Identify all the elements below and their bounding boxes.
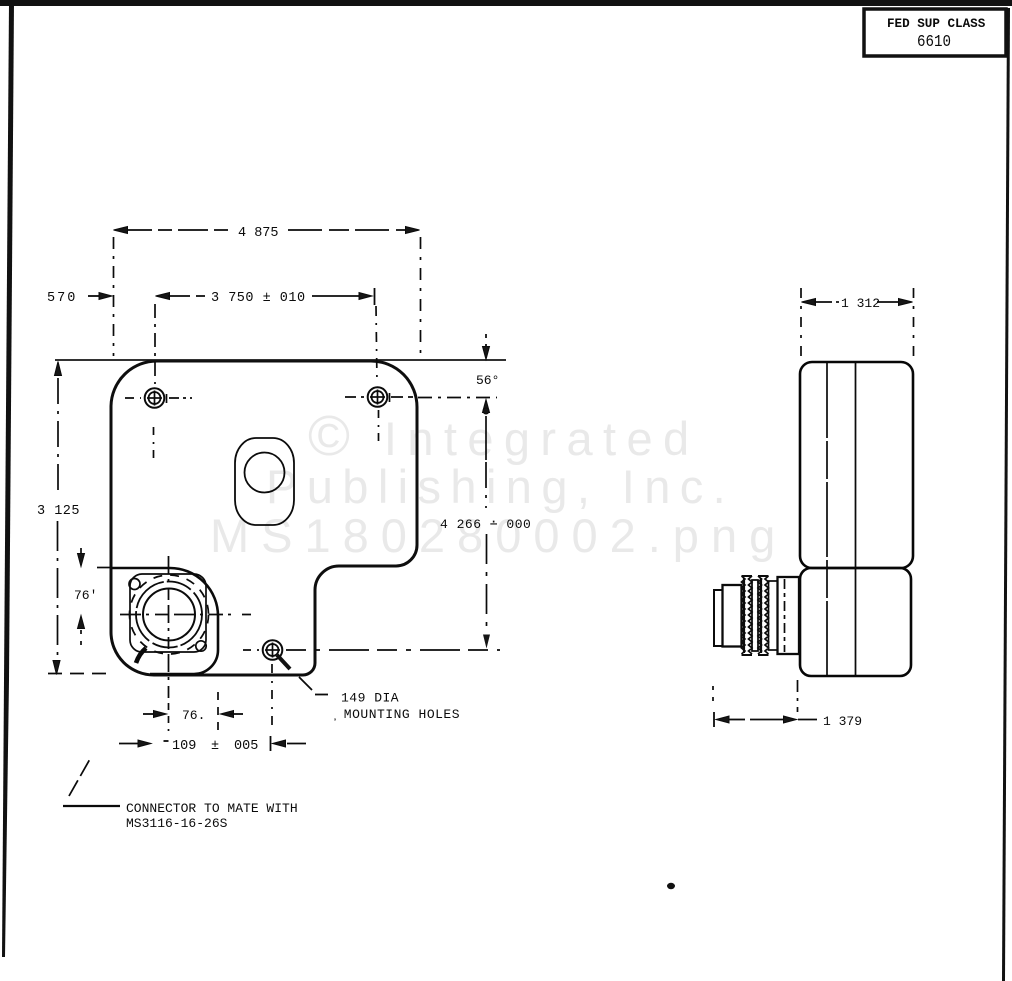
- svg-text:3 125: 3 125: [37, 504, 80, 519]
- svg-text:1 379: 1 379: [823, 714, 862, 729]
- svg-text:76.: 76.: [182, 708, 205, 723]
- svg-text:© Integrated: © Integrated: [308, 404, 700, 468]
- svg-text:Publishing, Inc.: Publishing, Inc.: [266, 460, 735, 513]
- svg-text:4 266 ∸ 000: 4 266 ∸ 000: [440, 517, 531, 532]
- svg-text:MS3116-16-26S: MS3116-16-26S: [126, 816, 228, 831]
- svg-text:76': 76': [74, 588, 97, 603]
- svg-text:149 DIA: 149 DIA: [341, 691, 399, 706]
- svg-text:109: 109: [172, 739, 196, 754]
- svg-text:3 750 ± 010: 3 750 ± 010: [211, 291, 306, 306]
- svg-text:570: 570: [47, 291, 77, 306]
- svg-text:4 875: 4 875: [238, 226, 279, 241]
- svg-text:FED SUP CLASS: FED SUP CLASS: [887, 17, 986, 31]
- svg-text:1 312: 1 312: [841, 296, 880, 311]
- svg-text:CONNECTOR TO MATE WITH: CONNECTOR TO MATE WITH: [126, 801, 298, 816]
- svg-text:56°: 56°: [476, 373, 499, 388]
- svg-text:005: 005: [234, 739, 258, 754]
- svg-text:6610: 6610: [917, 33, 951, 52]
- svg-text:±: ±: [211, 739, 219, 754]
- svg-text:̦ MOUNTING HOLES: ̦ MOUNTING HOLES: [334, 707, 460, 722]
